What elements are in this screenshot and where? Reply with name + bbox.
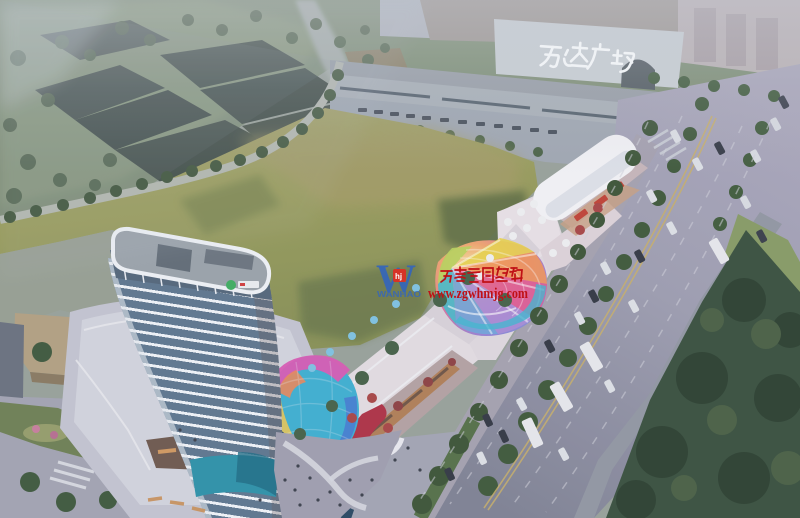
svg-text:www.zgwhmjg.com: www.zgwhmjg.com (428, 286, 528, 302)
svg-text:hj: hj (395, 272, 402, 281)
svg-text:WANHAO: WANHAO (377, 290, 421, 299)
